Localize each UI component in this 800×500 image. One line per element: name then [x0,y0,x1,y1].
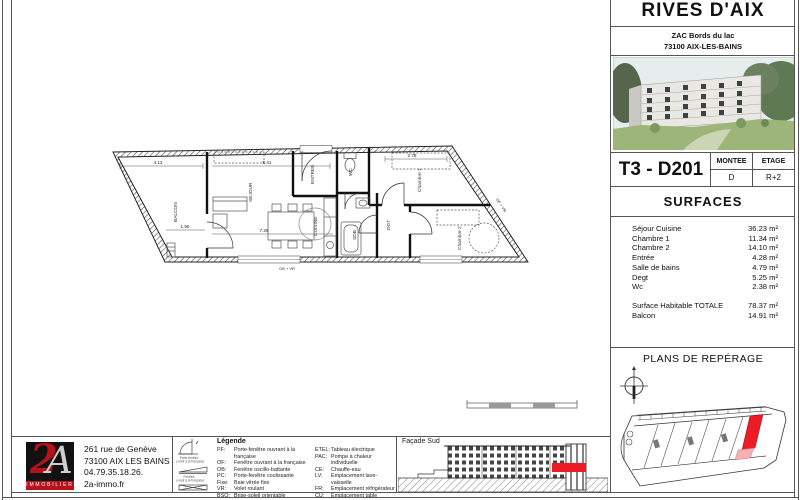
surfaces-table: Séjour Cuisine36.23 m² Chambre 111.34 m²… [612,224,794,320]
montee-value: D [711,170,752,185]
surface-row: Chambre 111.34 m² [612,234,794,244]
border-right-inner [794,0,795,497]
compass-icon [618,366,650,406]
label-chambre1: Chambre 1 [417,168,423,192]
surfaces-title: SURFACES [612,187,794,215]
divider-bottom-top [11,436,611,437]
montee-label: MONTEE [711,154,752,168]
site-key-plan [614,404,794,490]
reperage-title: PLANS DE REPÉRAGE [612,351,794,367]
dimensions [120,156,447,234]
label-dgt: DGT [386,220,392,230]
doors [207,151,432,248]
annotation-of-vr: OF + VR [495,197,508,213]
border-left-outer [2,0,3,500]
dim-balcon-depth: 1.90 [181,224,190,229]
legend-item: LV:Emplacement lave-vaisselle [315,473,395,486]
floor-plan: BALCON SEJOUR CUISINE ENTREE WC SDB DGT … [12,0,610,432]
label-wc: WC [348,167,354,176]
surface-row: Entrée4.28 m² [612,253,794,263]
surface-row: Chambre 214.10 m² [612,243,794,253]
logo-immobilier: IMMOBILIER [26,481,74,490]
etage-label: ETAGE [753,154,794,168]
surface-row: Wc2.38 m² [612,282,794,292]
agency-street: 261 rue de Genève [84,444,174,456]
dim-sejour: 5.41 [263,160,272,165]
label-balcon: BALCON [173,202,179,222]
legend-col1: PF:Porte-fenêtre ouvrant à la française … [217,447,313,499]
legend-item: CU:Emplacement table cuisson [315,493,395,500]
divider-r1 [611,26,795,27]
divider-r6 [611,347,795,348]
surface-row: Salle de bains4.79 m² [612,263,794,273]
agency-phone: 04.79.35.18.26. [84,467,174,479]
border-right-outer [798,0,799,500]
surface-row: Degt5.25 m² [612,273,794,283]
facade-unit-highlight [552,463,586,472]
svg-text:ouvrant à la française: ouvrant à la française [176,479,204,483]
unit-code: T3 - D201 [612,153,710,186]
building-photo [613,57,794,150]
legend-item: BSO:Brise-soleil orientable [217,493,313,500]
window-icon [179,467,207,474]
border-bottom-inner [11,492,795,493]
divider-r5 [611,216,795,217]
project-address: ZAC Bords du lac 73100 AIX-LES-BAINS [612,28,794,54]
drawing-sheet: BALCON SEJOUR CUISINE ENTREE WC SDB DGT … [0,0,800,500]
project-title: RIVES D'AIX [612,0,794,26]
interior-walls [207,148,490,258]
legend-item: PAC:Pompe à chaleur individuelle [315,454,395,467]
label-sejour: SEJOUR [248,182,254,202]
surface-row: Séjour Cuisine36.23 m² [612,224,794,234]
agency-city: 73100 AIX LES BAINS [84,456,174,468]
door-swing-icon [178,439,198,454]
logo-a: A [46,439,73,482]
legend-col2: ETEL:Tableau électrique PAC:Pompe à chal… [315,447,395,500]
facade-drawing [398,438,608,492]
surface-total-row: Surface Habitable TOTALE78.37 m² [612,301,794,311]
project-address-line1: ZAC Bords du lac [672,30,735,41]
label-cuisine: CUISINE [313,217,319,236]
legend-icons: Porte-fenêtre ouvrant à la française Fen… [176,438,214,492]
dim-interieur: 7.26 [260,228,269,233]
label-entree: ENTREE [310,165,316,184]
etage-value: R+2 [753,170,794,185]
divider-r2 [611,55,795,56]
svg-text:ouvrant à la française: ouvrant à la française [176,460,204,464]
dim-balcon: 4.13 [154,160,163,165]
divider-b2 [396,436,397,493]
border-bottom-outer [2,497,799,498]
agency-website[interactable]: 2a-immo.fr [84,479,174,491]
legend-title: Légende [217,438,246,445]
room-labels: BALCON SEJOUR CUISINE ENTREE WC SDB DGT … [173,165,463,250]
label-chambre2: Chambre 2 [457,226,463,250]
agency-address: 261 rue de Genève 73100 AIX LES BAINS 04… [84,444,174,490]
legend-item: PF:Porte-fenêtre ouvrant à la française [217,447,313,460]
label-sdb: SDB [352,230,358,240]
divider-main-vertical [610,0,611,493]
annotation-ob-vr: OB + VR [279,266,295,271]
project-address-line2: 73100 AIX-LES-BAINS [664,41,742,52]
agency-logo: 2 A IMMOBILIER [26,442,74,490]
surface-total-row: Balcon14.91 m² [612,311,794,321]
scale-bar [467,400,577,408]
fixed-bay-icon [179,485,207,490]
dim-chambre1: 2.79 [408,153,417,158]
